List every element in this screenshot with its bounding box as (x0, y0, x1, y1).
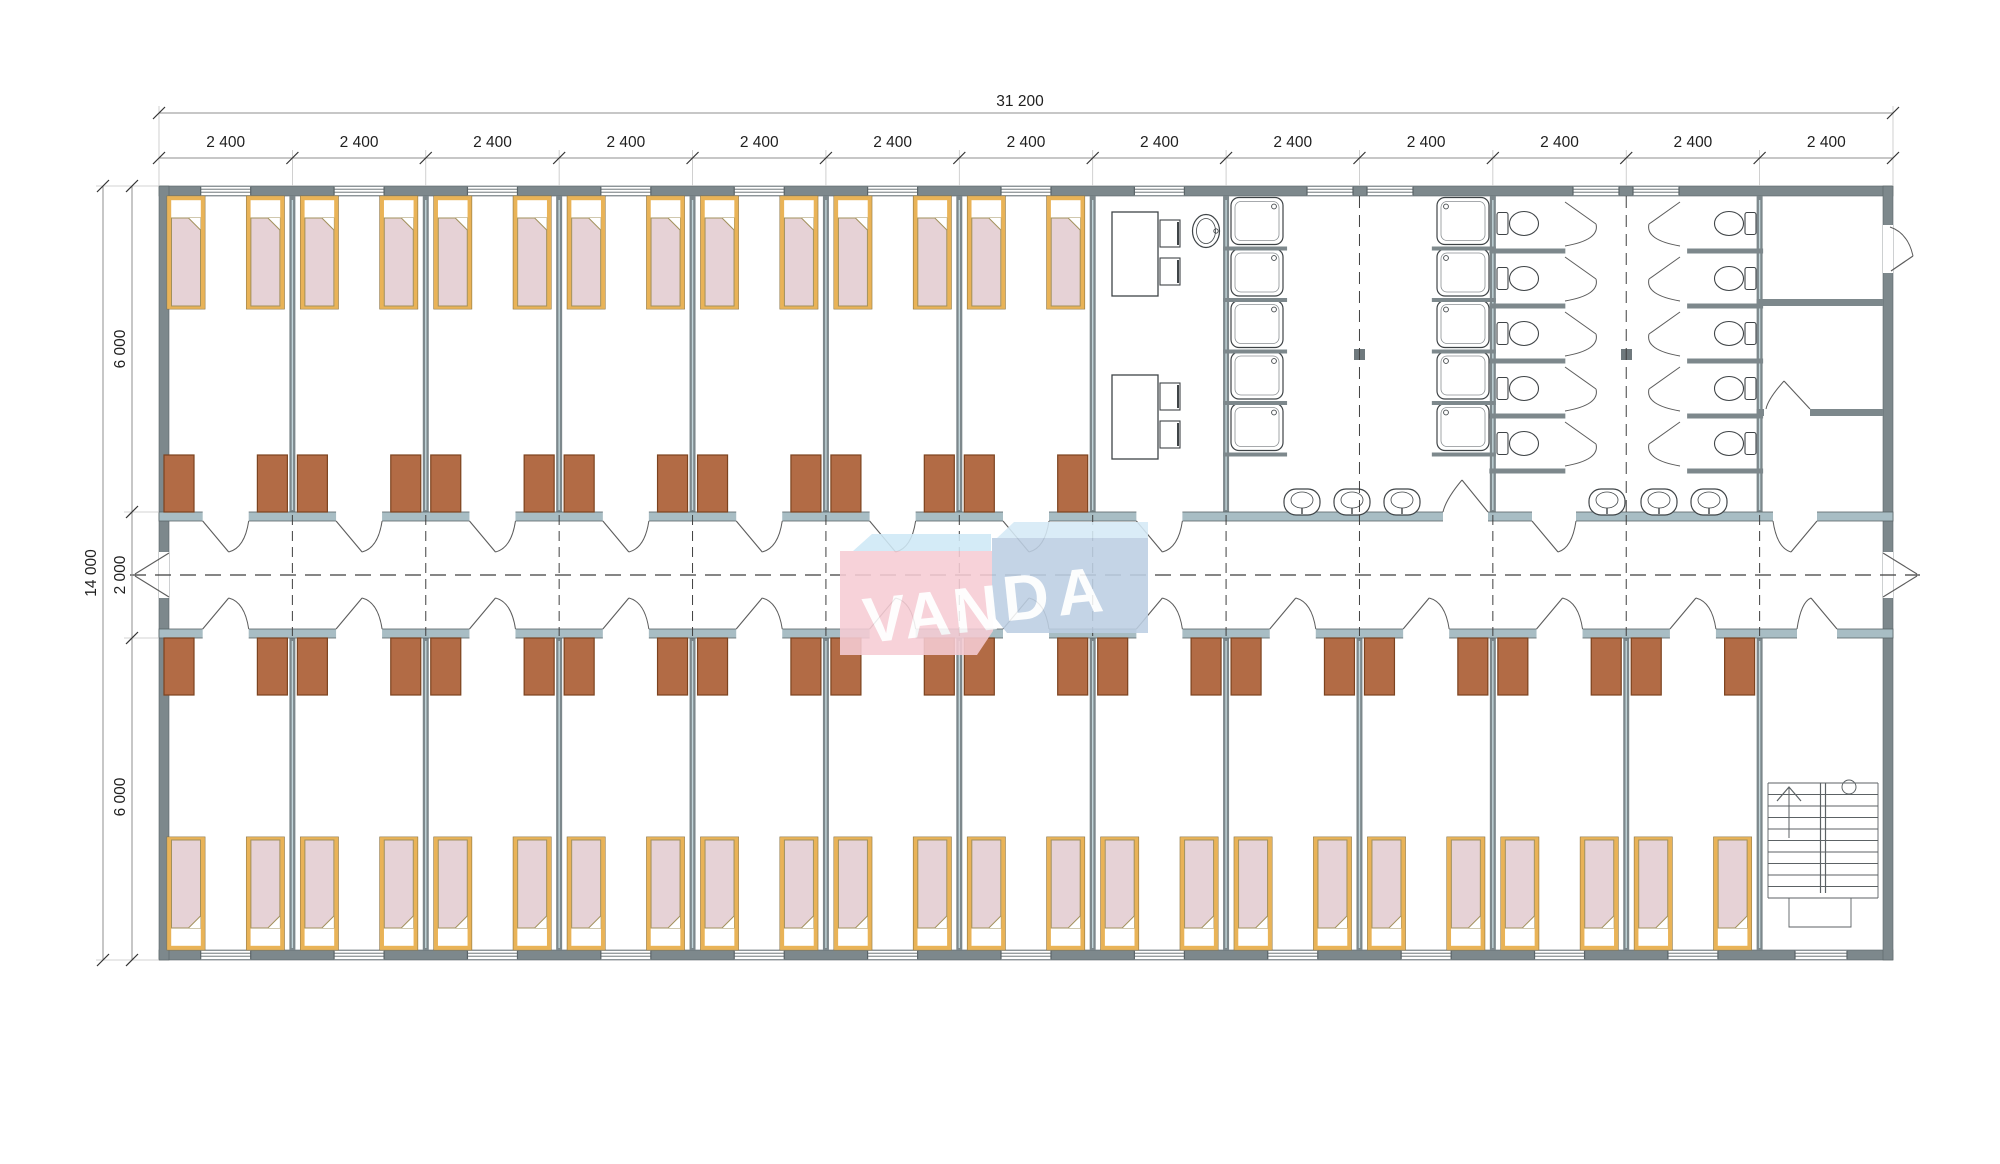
door-opening (870, 512, 916, 522)
bed (1313, 837, 1351, 950)
door-opening (469, 512, 515, 522)
bed (380, 196, 418, 309)
toilet-cistern (1497, 378, 1508, 400)
mattress (784, 218, 813, 306)
toilet-cistern (1745, 323, 1756, 345)
wardrobe (1058, 638, 1088, 695)
window (868, 187, 918, 195)
mattress (1185, 840, 1214, 928)
mattress (438, 840, 467, 928)
window (1535, 951, 1585, 959)
bed (1447, 837, 1485, 950)
logo-slab-top-pink (853, 534, 991, 551)
toilet-stall-partition (1687, 304, 1763, 309)
door-opening (203, 629, 249, 639)
toilet-stall-partition (1687, 414, 1763, 419)
bed (701, 196, 739, 309)
door-opening (736, 629, 782, 639)
dimension-label-left-segment: 6 000 (112, 777, 129, 816)
toilet-bowl (1715, 432, 1744, 456)
door-opening (1883, 225, 1893, 273)
mattress (518, 840, 547, 928)
window (1307, 187, 1353, 195)
door-opening (1270, 629, 1316, 639)
toilet-cistern (1497, 433, 1508, 455)
mattress (1239, 840, 1268, 928)
dimension-label-left-segment: 2 000 (112, 555, 129, 594)
bed (1234, 837, 1272, 950)
dimension-label-left-total: 14 000 (83, 549, 100, 597)
bed (834, 196, 872, 309)
bed (513, 196, 551, 309)
toilet-stall-partition (1687, 359, 1763, 364)
wardrobe (564, 638, 594, 695)
bed (1367, 837, 1405, 950)
mattress (305, 840, 334, 928)
mattress (384, 218, 413, 306)
toilet-cistern (1745, 268, 1756, 290)
door-opening (736, 512, 782, 522)
toilet-stall-partition (1489, 359, 1565, 364)
mattress (838, 840, 867, 928)
wardrobe (924, 455, 954, 512)
bed (967, 837, 1005, 950)
wardrobe (1231, 638, 1261, 695)
wardrobe (297, 638, 327, 695)
dimension-label-segment: 2 400 (1674, 134, 1713, 151)
dimension-label-segment: 2 400 (1273, 134, 1312, 151)
dimension-label-segment: 2 400 (473, 134, 512, 151)
floor-plan-sheet: 31 2002 4002 4002 4002 4002 4002 4002 40… (0, 0, 2000, 1164)
bed (913, 837, 951, 950)
logo-text-part1: VAN (860, 571, 1006, 657)
bed (300, 196, 338, 309)
dimension-label-segment: 2 400 (206, 134, 245, 151)
shower-partition-stub (1432, 247, 1496, 251)
mattress (572, 840, 601, 928)
dimension-label-segment: 2 400 (1007, 134, 1046, 151)
dimension-label-top-total: 31 200 (996, 93, 1044, 110)
bed (1180, 837, 1218, 950)
mattress (251, 840, 280, 928)
wardrobe (1324, 638, 1354, 695)
wardrobe (1364, 638, 1394, 695)
mattress (1051, 218, 1080, 306)
bed (300, 837, 338, 950)
bed (834, 837, 872, 950)
window (1001, 187, 1051, 195)
toilet-cistern (1497, 213, 1508, 235)
toilet-stall-partition (1687, 249, 1763, 254)
wardrobe (831, 455, 861, 512)
window (334, 187, 384, 195)
door-opening (336, 629, 382, 639)
bed (434, 837, 472, 950)
mattress (1505, 840, 1534, 928)
wardrobe (1725, 638, 1755, 695)
mattress (651, 218, 680, 306)
toilet-bowl (1510, 322, 1539, 346)
wardrobe (564, 455, 594, 512)
door-opening (1403, 629, 1449, 639)
toilet-cistern (1497, 268, 1508, 290)
wardrobe (1191, 638, 1221, 695)
wardrobe (1591, 638, 1621, 695)
shower-partition-stub (1432, 453, 1496, 457)
toilet-cistern (1497, 323, 1508, 345)
toilet-stall-partition (1489, 304, 1565, 309)
window (1633, 187, 1679, 195)
logo-text-part2: DA (999, 552, 1114, 635)
wardrobe (391, 638, 421, 695)
door-opening (1773, 512, 1817, 522)
bed (1501, 837, 1539, 950)
window (734, 187, 784, 195)
bed (701, 837, 739, 950)
door-opening (1764, 409, 1810, 417)
toilet-bowl (1715, 267, 1744, 291)
mattress (1105, 840, 1134, 928)
bed (1047, 196, 1085, 309)
mattress (384, 840, 413, 928)
dimension-label-segment: 2 400 (873, 134, 912, 151)
dimension-label-segment: 2 400 (1807, 134, 1846, 151)
dimension-label-left-segment: 6 000 (112, 329, 129, 368)
window (1668, 951, 1718, 959)
wardrobe (964, 455, 994, 512)
dimension-label-segment: 2 400 (740, 134, 779, 151)
toilet-bowl (1715, 322, 1744, 346)
dimension-label-segment: 2 400 (340, 134, 379, 151)
bed (780, 196, 818, 309)
bed (246, 837, 284, 950)
bed (647, 837, 685, 950)
door-opening (203, 512, 249, 522)
dimension-label-segment: 2 400 (1407, 134, 1446, 151)
window (1795, 951, 1847, 959)
door-opening (1670, 629, 1716, 639)
window (868, 951, 918, 959)
bed (567, 196, 605, 309)
window (1268, 951, 1318, 959)
wardrobe (431, 638, 461, 695)
bed (567, 837, 605, 950)
mattress (651, 840, 680, 928)
wardrobe (791, 638, 821, 695)
wardrobe (164, 638, 194, 695)
toilet-cistern (1745, 378, 1756, 400)
door-opening (1537, 629, 1583, 639)
door-opening (336, 512, 382, 522)
toilet-stall-partition (1489, 414, 1565, 419)
wardrobe (257, 455, 287, 512)
toilet-cistern (1745, 213, 1756, 235)
wardrobe (1458, 638, 1488, 695)
floor-plan: 31 2002 4002 4002 4002 4002 4002 4002 40… (0, 0, 2000, 1164)
bed (167, 196, 205, 309)
wardrobe (391, 455, 421, 512)
window (201, 951, 251, 959)
bed (1101, 837, 1139, 950)
logo-slab-top-blue (997, 522, 1148, 538)
toilet-cistern (1745, 433, 1756, 455)
door-opening (603, 629, 649, 639)
wardrobe (698, 638, 728, 695)
mattress (572, 218, 601, 306)
shower-partition-stub (1223, 350, 1287, 354)
bed (1714, 837, 1752, 950)
wardrobe (658, 638, 688, 695)
mattress (1451, 840, 1480, 928)
shower-partition-stub (1223, 247, 1287, 251)
toilet-bowl (1715, 377, 1744, 401)
mattress (438, 218, 467, 306)
mattress (918, 840, 947, 928)
dimension-label-segment: 2 400 (606, 134, 645, 151)
mattress (784, 840, 813, 928)
wardrobe (524, 638, 554, 695)
mattress (305, 218, 334, 306)
bed (967, 196, 1005, 309)
mattress (972, 840, 1001, 928)
wardrobe (1498, 638, 1528, 695)
door-opening (603, 512, 649, 522)
wardrobe (1058, 455, 1088, 512)
door-opening (1797, 629, 1837, 639)
window (1001, 951, 1051, 959)
bed (246, 196, 284, 309)
toilet-stall-partition (1489, 469, 1565, 474)
window (467, 951, 517, 959)
window (1134, 187, 1184, 195)
dimension-label-segment: 2 400 (1540, 134, 1579, 151)
bed (1047, 837, 1085, 950)
toilet-stall-partition (1489, 249, 1565, 254)
dining-table (1112, 212, 1158, 296)
window (467, 187, 517, 195)
door-opening (1003, 512, 1049, 522)
toilet-bowl (1715, 212, 1744, 236)
window (1367, 187, 1413, 195)
partition-wall (1757, 299, 1883, 306)
wardrobe (257, 638, 287, 695)
window (201, 187, 251, 195)
dimension-label-segment: 2 400 (1140, 134, 1179, 151)
window (734, 951, 784, 959)
toilet-bowl (1510, 212, 1539, 236)
bed (167, 837, 205, 950)
mattress (1639, 840, 1668, 928)
mattress (172, 218, 201, 306)
toilet-bowl (1510, 267, 1539, 291)
bed (647, 196, 685, 309)
mattress (251, 218, 280, 306)
bed (380, 837, 418, 950)
mattress (1051, 840, 1080, 928)
mattress (705, 840, 734, 928)
window (334, 951, 384, 959)
bed (434, 196, 472, 309)
bed (1634, 837, 1672, 950)
window (1401, 951, 1451, 959)
shower-partition-stub (1223, 401, 1287, 405)
door-opening (1443, 512, 1488, 522)
wardrobe (698, 455, 728, 512)
dining-table (1112, 375, 1158, 459)
door-opening (469, 629, 515, 639)
shower-partition-stub (1432, 298, 1496, 302)
toilet-stall-partition (1687, 469, 1763, 474)
wardrobe (164, 455, 194, 512)
mattress (1318, 840, 1347, 928)
mattress (918, 218, 947, 306)
wardrobe (431, 455, 461, 512)
door-opening (1136, 512, 1182, 522)
mattress (705, 218, 734, 306)
door-opening (1532, 512, 1576, 522)
mattress (972, 218, 1001, 306)
window (1134, 951, 1184, 959)
bed (513, 837, 551, 950)
toilet-bowl (1510, 377, 1539, 401)
shower-partition-stub (1432, 350, 1496, 354)
wardrobe (658, 455, 688, 512)
mattress (1718, 840, 1747, 928)
wardrobe (524, 455, 554, 512)
wardrobe (297, 455, 327, 512)
window (601, 951, 651, 959)
mattress (838, 218, 867, 306)
shower-partition-stub (1223, 453, 1287, 457)
shower-partition-stub (1432, 401, 1496, 405)
window (601, 187, 651, 195)
wardrobe (791, 455, 821, 512)
mattress (172, 840, 201, 928)
bed (1580, 837, 1618, 950)
bed (780, 837, 818, 950)
window (1573, 187, 1619, 195)
wardrobe (1098, 638, 1128, 695)
bed (913, 196, 951, 309)
wardrobe (1631, 638, 1661, 695)
mattress (1372, 840, 1401, 928)
toilet-bowl (1510, 432, 1539, 456)
mattress (1585, 840, 1614, 928)
mattress (518, 218, 547, 306)
shower-partition-stub (1223, 298, 1287, 302)
